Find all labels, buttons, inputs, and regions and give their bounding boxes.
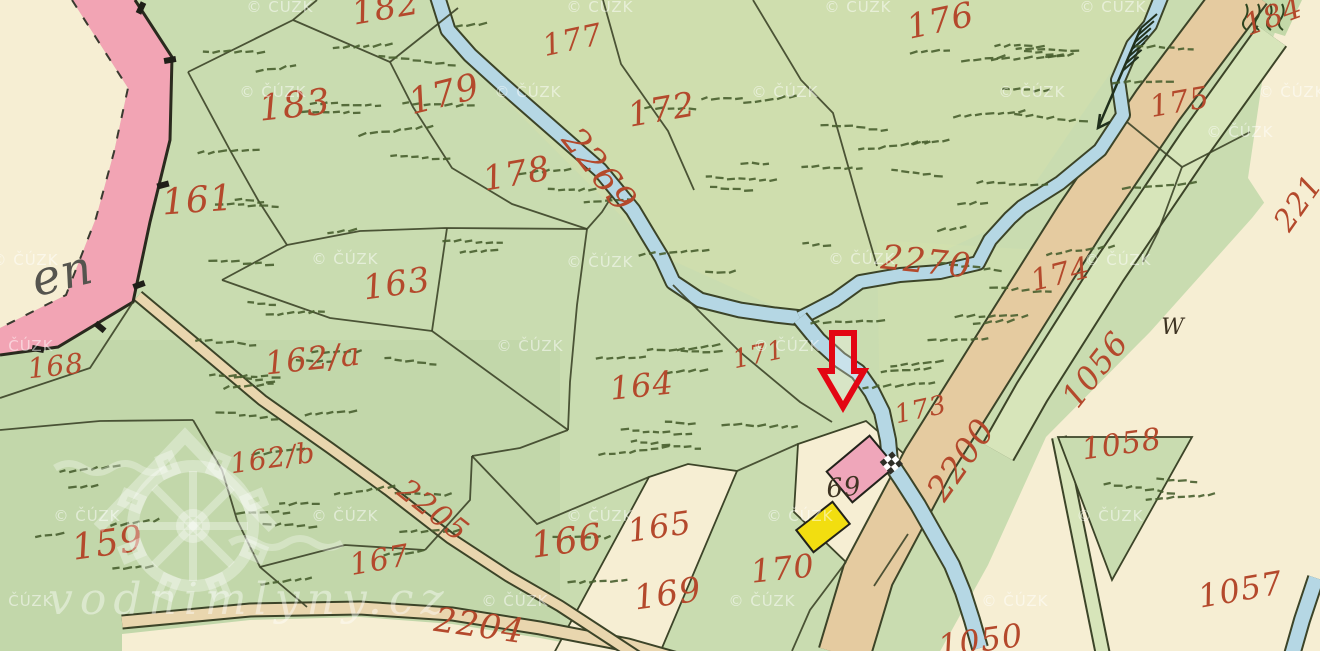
source-watermark: © ČÚZK (0, 336, 54, 355)
source-watermark: © ČÚZK (1258, 82, 1320, 101)
source-watermark: © ČÚZK (246, 0, 313, 16)
source-watermark: © ČÚZK (1079, 0, 1146, 16)
source-watermark: © ČÚZK (828, 249, 895, 268)
source-watermark: © ČÚZK (566, 0, 633, 16)
source-watermark: © ČÚZK (1076, 506, 1143, 525)
source-watermark: © ČÚZK (496, 336, 563, 355)
source-watermark: © ČÚZK (239, 82, 306, 101)
map-canvas[interactable]: 1821831611791771782269172176184175221174… (0, 0, 1320, 651)
source-watermark: © ČÚZK (981, 591, 1048, 610)
source-watermark: © ČÚZK (998, 82, 1065, 101)
source-watermark: © ČÚZK (481, 591, 548, 610)
source-watermark: © ČÚZK (728, 591, 795, 610)
source-watermark: © ČÚZK (753, 336, 820, 355)
source-watermark: © ČÚZK (0, 250, 59, 269)
source-watermark: © ČÚZK (751, 82, 818, 101)
source-watermark: © ČÚZK (494, 82, 561, 101)
source-watermark: © ČÚZK (566, 252, 633, 271)
source-watermark: © ČÚZK (566, 506, 633, 525)
source-watermark: © ČÚZK (311, 506, 378, 525)
source-watermark: © ČÚZK (53, 506, 120, 525)
building-label-69: 69 (825, 472, 863, 505)
parcel-label-161: 161 (161, 178, 235, 224)
parcel-label-170: 170 (749, 546, 817, 590)
parcel-label-164: 164 (608, 363, 676, 407)
site-watermark: vodnimlyny.cz (48, 574, 451, 625)
source-watermark: © ČÚZK (1206, 122, 1273, 141)
symbol-w: W (1161, 315, 1186, 340)
source-watermark: © ČÚZK (766, 506, 833, 525)
map-viewport[interactable]: 1821831611791771782269172176184175221174… (0, 0, 1320, 651)
source-watermark: © ČÚZK (824, 0, 891, 16)
source-watermark: © ČÚZK (0, 591, 54, 610)
source-watermark: © ČÚZK (1084, 250, 1151, 269)
source-watermark: © ČÚZK (311, 249, 378, 268)
